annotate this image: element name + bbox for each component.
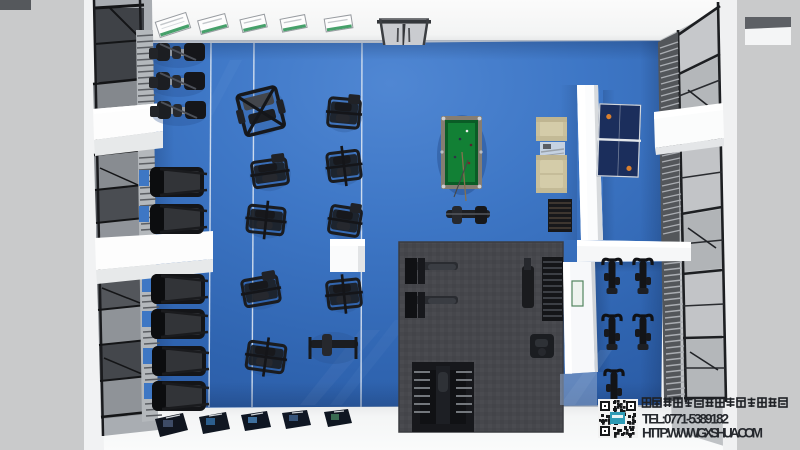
svg-text:HTTP:WWW.GXSHUA.COM: HTTP:WWW.GXSHUA.COM (642, 426, 763, 441)
svg-text:TEL:0771-5389182: TEL:0771-5389182 (642, 412, 729, 427)
